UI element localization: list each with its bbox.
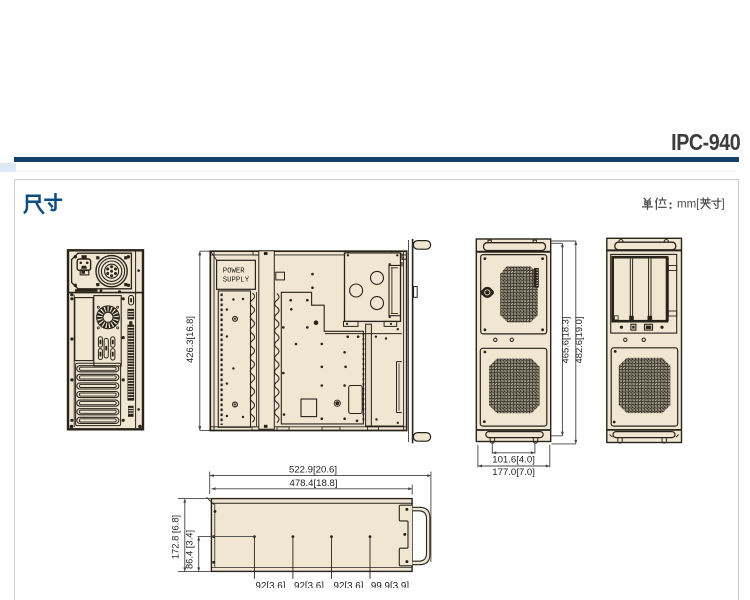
svg-text:POWER: POWER [223,268,246,276]
svg-text:177.0[7.0]: 177.0[7.0] [492,467,535,478]
svg-text:522.9[20.6]: 522.9[20.6] [289,464,337,475]
svg-text:478.4[18.8]: 478.4[18.8] [289,478,337,489]
svg-text:465.6[18.3]: 465.6[18.3] [560,317,571,364]
svg-text:SUPPLY: SUPPLY [223,276,250,284]
svg-text:99.9[3.9]: 99.9[3.9] [371,581,409,588]
svg-text:172.8 [6.8]: 172.8 [6.8] [170,515,181,559]
svg-text:mm[: mm[ [677,199,700,211]
svg-text:101.6[4.0]: 101.6[4.0] [492,455,535,466]
svg-text:92[3.6]: 92[3.6] [256,581,286,588]
svg-text:92[3.6]: 92[3.6] [294,581,324,588]
svg-text:92[3.6]: 92[3.6] [334,581,364,588]
svg-text:]: ] [722,199,725,211]
svg-text:86.4 [3.4]: 86.4 [3.4] [184,530,195,569]
svg-text:482.6[19.0]: 482.6[19.0] [573,317,584,364]
svg-text:426.3[16.8]: 426.3[16.8] [184,316,195,363]
